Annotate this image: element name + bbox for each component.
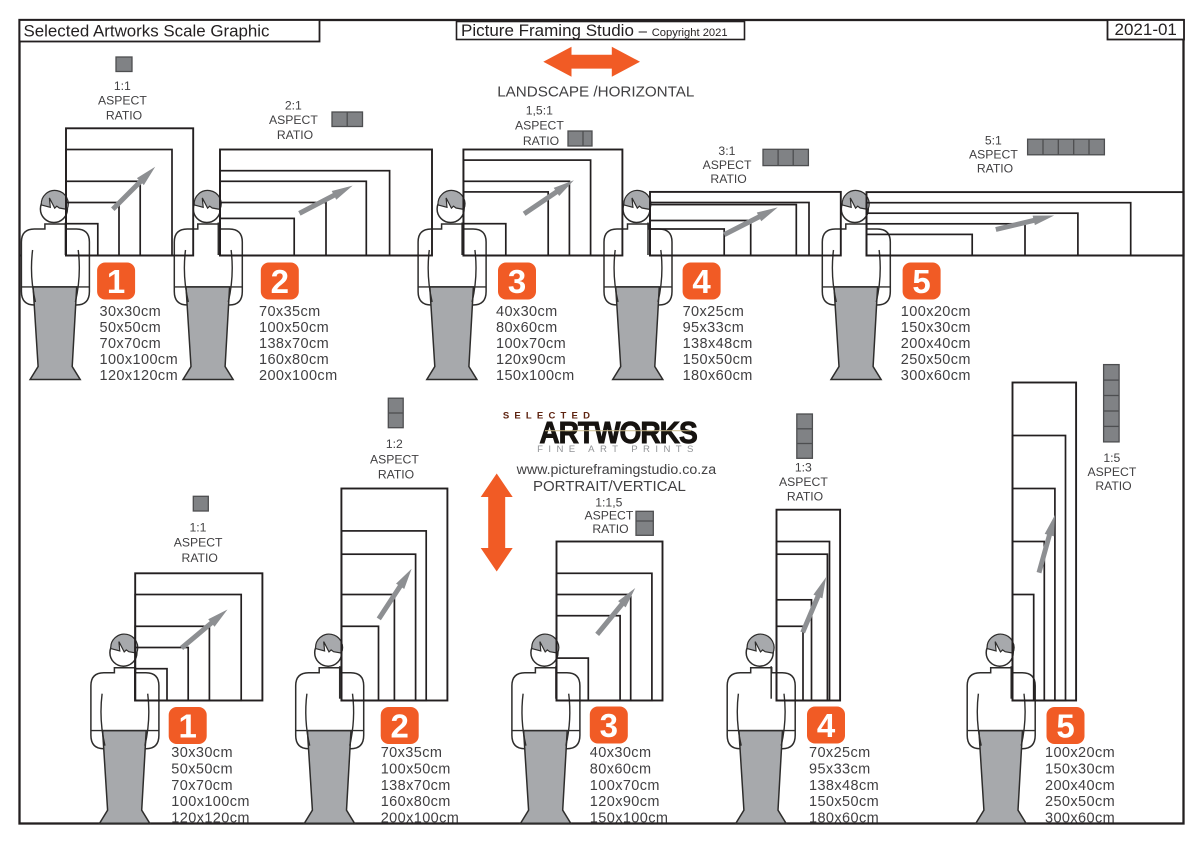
- svg-text:3: 3: [600, 707, 618, 744]
- svg-text:4: 4: [692, 263, 711, 300]
- svg-text:2: 2: [271, 263, 289, 300]
- svg-text:4: 4: [817, 707, 836, 744]
- svg-text:PORTRAIT/VERTICAL: PORTRAIT/VERTICAL: [533, 478, 686, 495]
- svg-text:100x20cm 150x30cm 200x40cm 250: 100x20cm 150x30cm 200x40cm 250x50cm 300x…: [901, 304, 976, 384]
- svg-text:2: 2: [391, 708, 409, 745]
- svg-text:5: 5: [912, 263, 930, 300]
- svg-text:70x25cm 95x33cm 138x48cm 150x5: 70x25cm 95x33cm 138x48cm 150x50cm 180x60…: [809, 745, 884, 826]
- svg-text:70x25cm 95x33cm 138x48cm 150x5: 70x25cm 95x33cm 138x48cm 150x50cm 180x60…: [683, 304, 758, 384]
- svg-text:LANDSCAPE /HORIZONTAL: LANDSCAPE /HORIZONTAL: [497, 84, 694, 101]
- svg-text:FINE ART PRINTS: FINE ART PRINTS: [537, 444, 699, 455]
- svg-text:Selected Artworks Scale Graphi: Selected Artworks Scale Graphic: [24, 22, 270, 41]
- svg-text:1: 1: [107, 263, 125, 300]
- svg-text:1: 1: [179, 708, 197, 745]
- svg-text:www.pictureframingstudio.co.za: www.pictureframingstudio.co.za: [516, 462, 717, 478]
- svg-text:3: 3: [508, 263, 526, 300]
- svg-text:2021-01: 2021-01: [1115, 20, 1177, 39]
- svg-text:100x20cm 150x30cm 200x40cm 250: 100x20cm 150x30cm 200x40cm 250x50cm 300x…: [1045, 745, 1120, 826]
- svg-text:5: 5: [1056, 708, 1074, 745]
